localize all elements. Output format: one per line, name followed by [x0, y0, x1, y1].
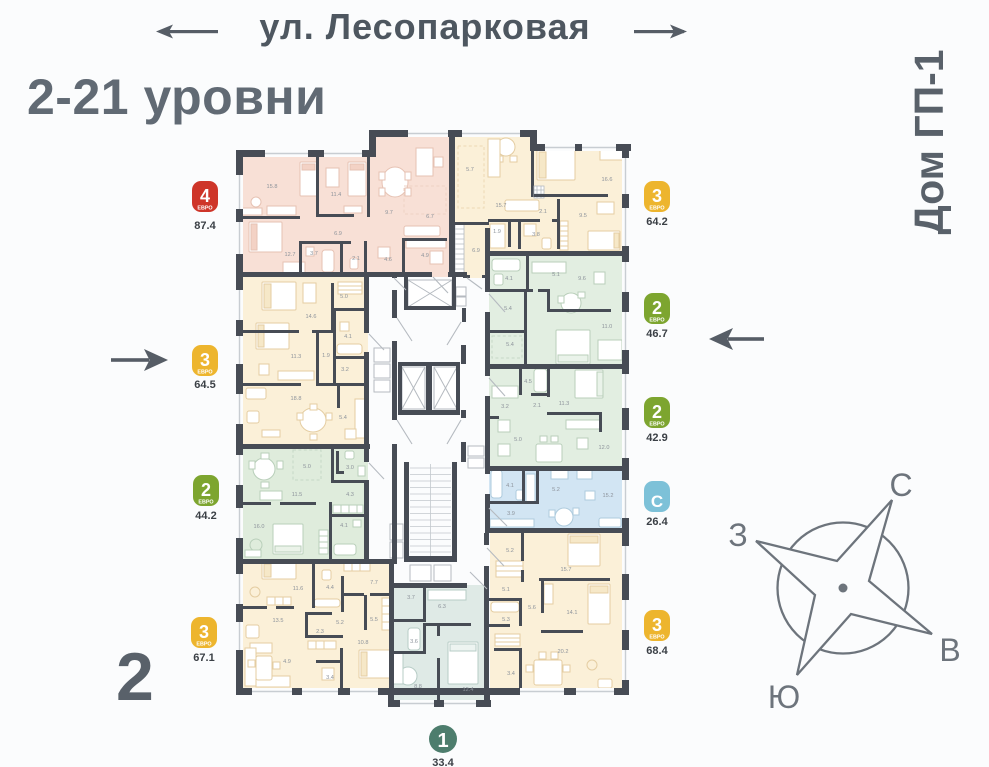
svg-text:2: 2: [652, 402, 662, 422]
svg-text:3.2: 3.2: [501, 404, 509, 410]
svg-text:16.0: 16.0: [254, 524, 265, 530]
svg-text:ул. Лесопарковая: ул. Лесопарковая: [259, 6, 590, 47]
svg-text:С: С: [889, 467, 912, 503]
svg-text:6.3: 6.3: [438, 604, 446, 610]
svg-text:1.9: 1.9: [322, 353, 330, 359]
svg-text:5.4: 5.4: [504, 306, 512, 312]
svg-text:11.5: 11.5: [292, 492, 302, 498]
svg-text:ЕВРО: ЕВРО: [649, 422, 664, 428]
svg-text:5.1: 5.1: [552, 272, 560, 278]
svg-text:3: 3: [652, 186, 662, 206]
svg-text:5.5: 5.5: [370, 617, 378, 623]
svg-text:11.4: 11.4: [331, 192, 341, 198]
svg-text:5.0: 5.0: [340, 294, 348, 300]
svg-text:ЕВРО: ЕВРО: [197, 206, 212, 212]
svg-text:20.2: 20.2: [558, 649, 569, 655]
svg-text:2.1: 2.1: [539, 209, 547, 215]
svg-text:87.4: 87.4: [194, 220, 216, 232]
svg-text:12.4: 12.4: [463, 687, 474, 693]
svg-text:5.2: 5.2: [552, 487, 560, 493]
svg-text:2-21 уровни: 2-21 уровни: [27, 69, 326, 125]
svg-text:ЕВРО: ЕВРО: [649, 635, 664, 641]
svg-text:33.4: 33.4: [432, 757, 454, 767]
svg-text:3.6: 3.6: [410, 639, 418, 645]
svg-text:ЕВРО: ЕВРО: [649, 206, 664, 212]
svg-text:6.7: 6.7: [426, 214, 434, 220]
svg-text:14.6: 14.6: [306, 314, 317, 320]
svg-text:5.7: 5.7: [466, 167, 474, 173]
svg-text:12.7: 12.7: [285, 252, 296, 258]
svg-text:26.4: 26.4: [646, 516, 668, 528]
svg-text:5.3: 5.3: [502, 617, 510, 623]
svg-text:2.1: 2.1: [533, 403, 541, 409]
svg-text:11.6: 11.6: [293, 586, 303, 592]
svg-text:4.1: 4.1: [505, 276, 513, 282]
svg-text:3.7: 3.7: [407, 595, 415, 601]
svg-text:С: С: [651, 492, 663, 511]
svg-text:9.7: 9.7: [385, 210, 393, 216]
svg-text:44.2: 44.2: [195, 510, 216, 522]
svg-text:1: 1: [437, 730, 448, 752]
svg-text:6.9: 6.9: [334, 231, 342, 237]
svg-text:13.5: 13.5: [273, 618, 284, 624]
svg-text:18.8: 18.8: [291, 396, 302, 402]
svg-text:4.1: 4.1: [340, 523, 348, 529]
svg-text:ЕВРО: ЕВРО: [649, 318, 664, 324]
svg-text:5.6: 5.6: [528, 605, 536, 611]
svg-text:В: В: [939, 632, 960, 668]
svg-text:15.7: 15.7: [496, 203, 507, 209]
svg-text:5.2: 5.2: [506, 548, 514, 554]
svg-text:3.7: 3.7: [310, 251, 318, 257]
svg-text:3: 3: [200, 350, 210, 370]
svg-text:11.3: 11.3: [291, 354, 301, 360]
svg-text:4.9: 4.9: [421, 253, 429, 259]
svg-text:3.2: 3.2: [341, 367, 349, 373]
svg-text:12.0: 12.0: [599, 445, 610, 451]
svg-text:64.2: 64.2: [646, 216, 667, 228]
svg-text:46.7: 46.7: [646, 328, 667, 340]
svg-text:З: З: [728, 517, 747, 553]
svg-text:3.8: 3.8: [532, 232, 540, 238]
svg-text:2: 2: [201, 480, 211, 500]
svg-text:3: 3: [199, 622, 209, 642]
svg-text:4.3: 4.3: [346, 492, 354, 498]
svg-text:7.7: 7.7: [370, 580, 378, 586]
svg-text:Дом ГП-1: Дом ГП-1: [906, 49, 952, 234]
svg-text:3.4: 3.4: [326, 675, 334, 681]
svg-text:ЕВРО: ЕВРО: [196, 642, 211, 648]
svg-text:4.5: 4.5: [524, 379, 532, 385]
svg-text:5.0: 5.0: [514, 437, 522, 443]
svg-text:2.3: 2.3: [316, 629, 324, 635]
svg-text:5.0: 5.0: [303, 464, 311, 470]
svg-text:3.0: 3.0: [346, 465, 354, 471]
svg-text:2: 2: [652, 298, 662, 318]
svg-text:3.9: 3.9: [507, 511, 515, 517]
svg-text:6.9: 6.9: [472, 248, 480, 254]
svg-text:14.1: 14.1: [567, 610, 578, 616]
svg-text:11.3: 11.3: [559, 401, 569, 407]
svg-text:2.1: 2.1: [352, 256, 360, 262]
svg-text:1.9: 1.9: [493, 229, 501, 235]
svg-text:9.6: 9.6: [578, 276, 586, 282]
svg-text:2: 2: [116, 639, 154, 715]
svg-text:ЕВРО: ЕВРО: [197, 370, 212, 376]
svg-text:4.9: 4.9: [283, 659, 291, 665]
svg-text:64.5: 64.5: [194, 379, 215, 391]
svg-text:15.8: 15.8: [267, 184, 278, 190]
svg-text:4.1: 4.1: [506, 483, 514, 489]
svg-text:5.4: 5.4: [339, 415, 347, 421]
svg-text:Ю: Ю: [768, 679, 800, 715]
svg-text:4.6: 4.6: [384, 257, 392, 263]
svg-text:3.4: 3.4: [507, 671, 515, 677]
svg-text:15.7: 15.7: [561, 567, 572, 573]
svg-text:5.1: 5.1: [502, 587, 510, 593]
svg-text:68.4: 68.4: [646, 645, 668, 657]
svg-text:9.5: 9.5: [579, 213, 587, 219]
svg-text:4: 4: [200, 186, 210, 206]
svg-text:8.8: 8.8: [414, 684, 422, 690]
svg-text:ЕВРО: ЕВРО: [198, 500, 213, 506]
svg-text:16.6: 16.6: [602, 177, 613, 183]
svg-text:11.0: 11.0: [602, 324, 612, 330]
svg-text:5.2: 5.2: [336, 620, 344, 626]
svg-text:10.8: 10.8: [358, 640, 369, 646]
svg-text:3: 3: [652, 615, 662, 635]
svg-text:4.4: 4.4: [326, 585, 334, 591]
svg-text:42.9: 42.9: [646, 432, 667, 444]
svg-text:4.1: 4.1: [344, 334, 352, 340]
svg-text:67.1: 67.1: [193, 652, 214, 664]
svg-text:5.4: 5.4: [506, 342, 514, 348]
svg-text:15.2: 15.2: [603, 493, 614, 499]
